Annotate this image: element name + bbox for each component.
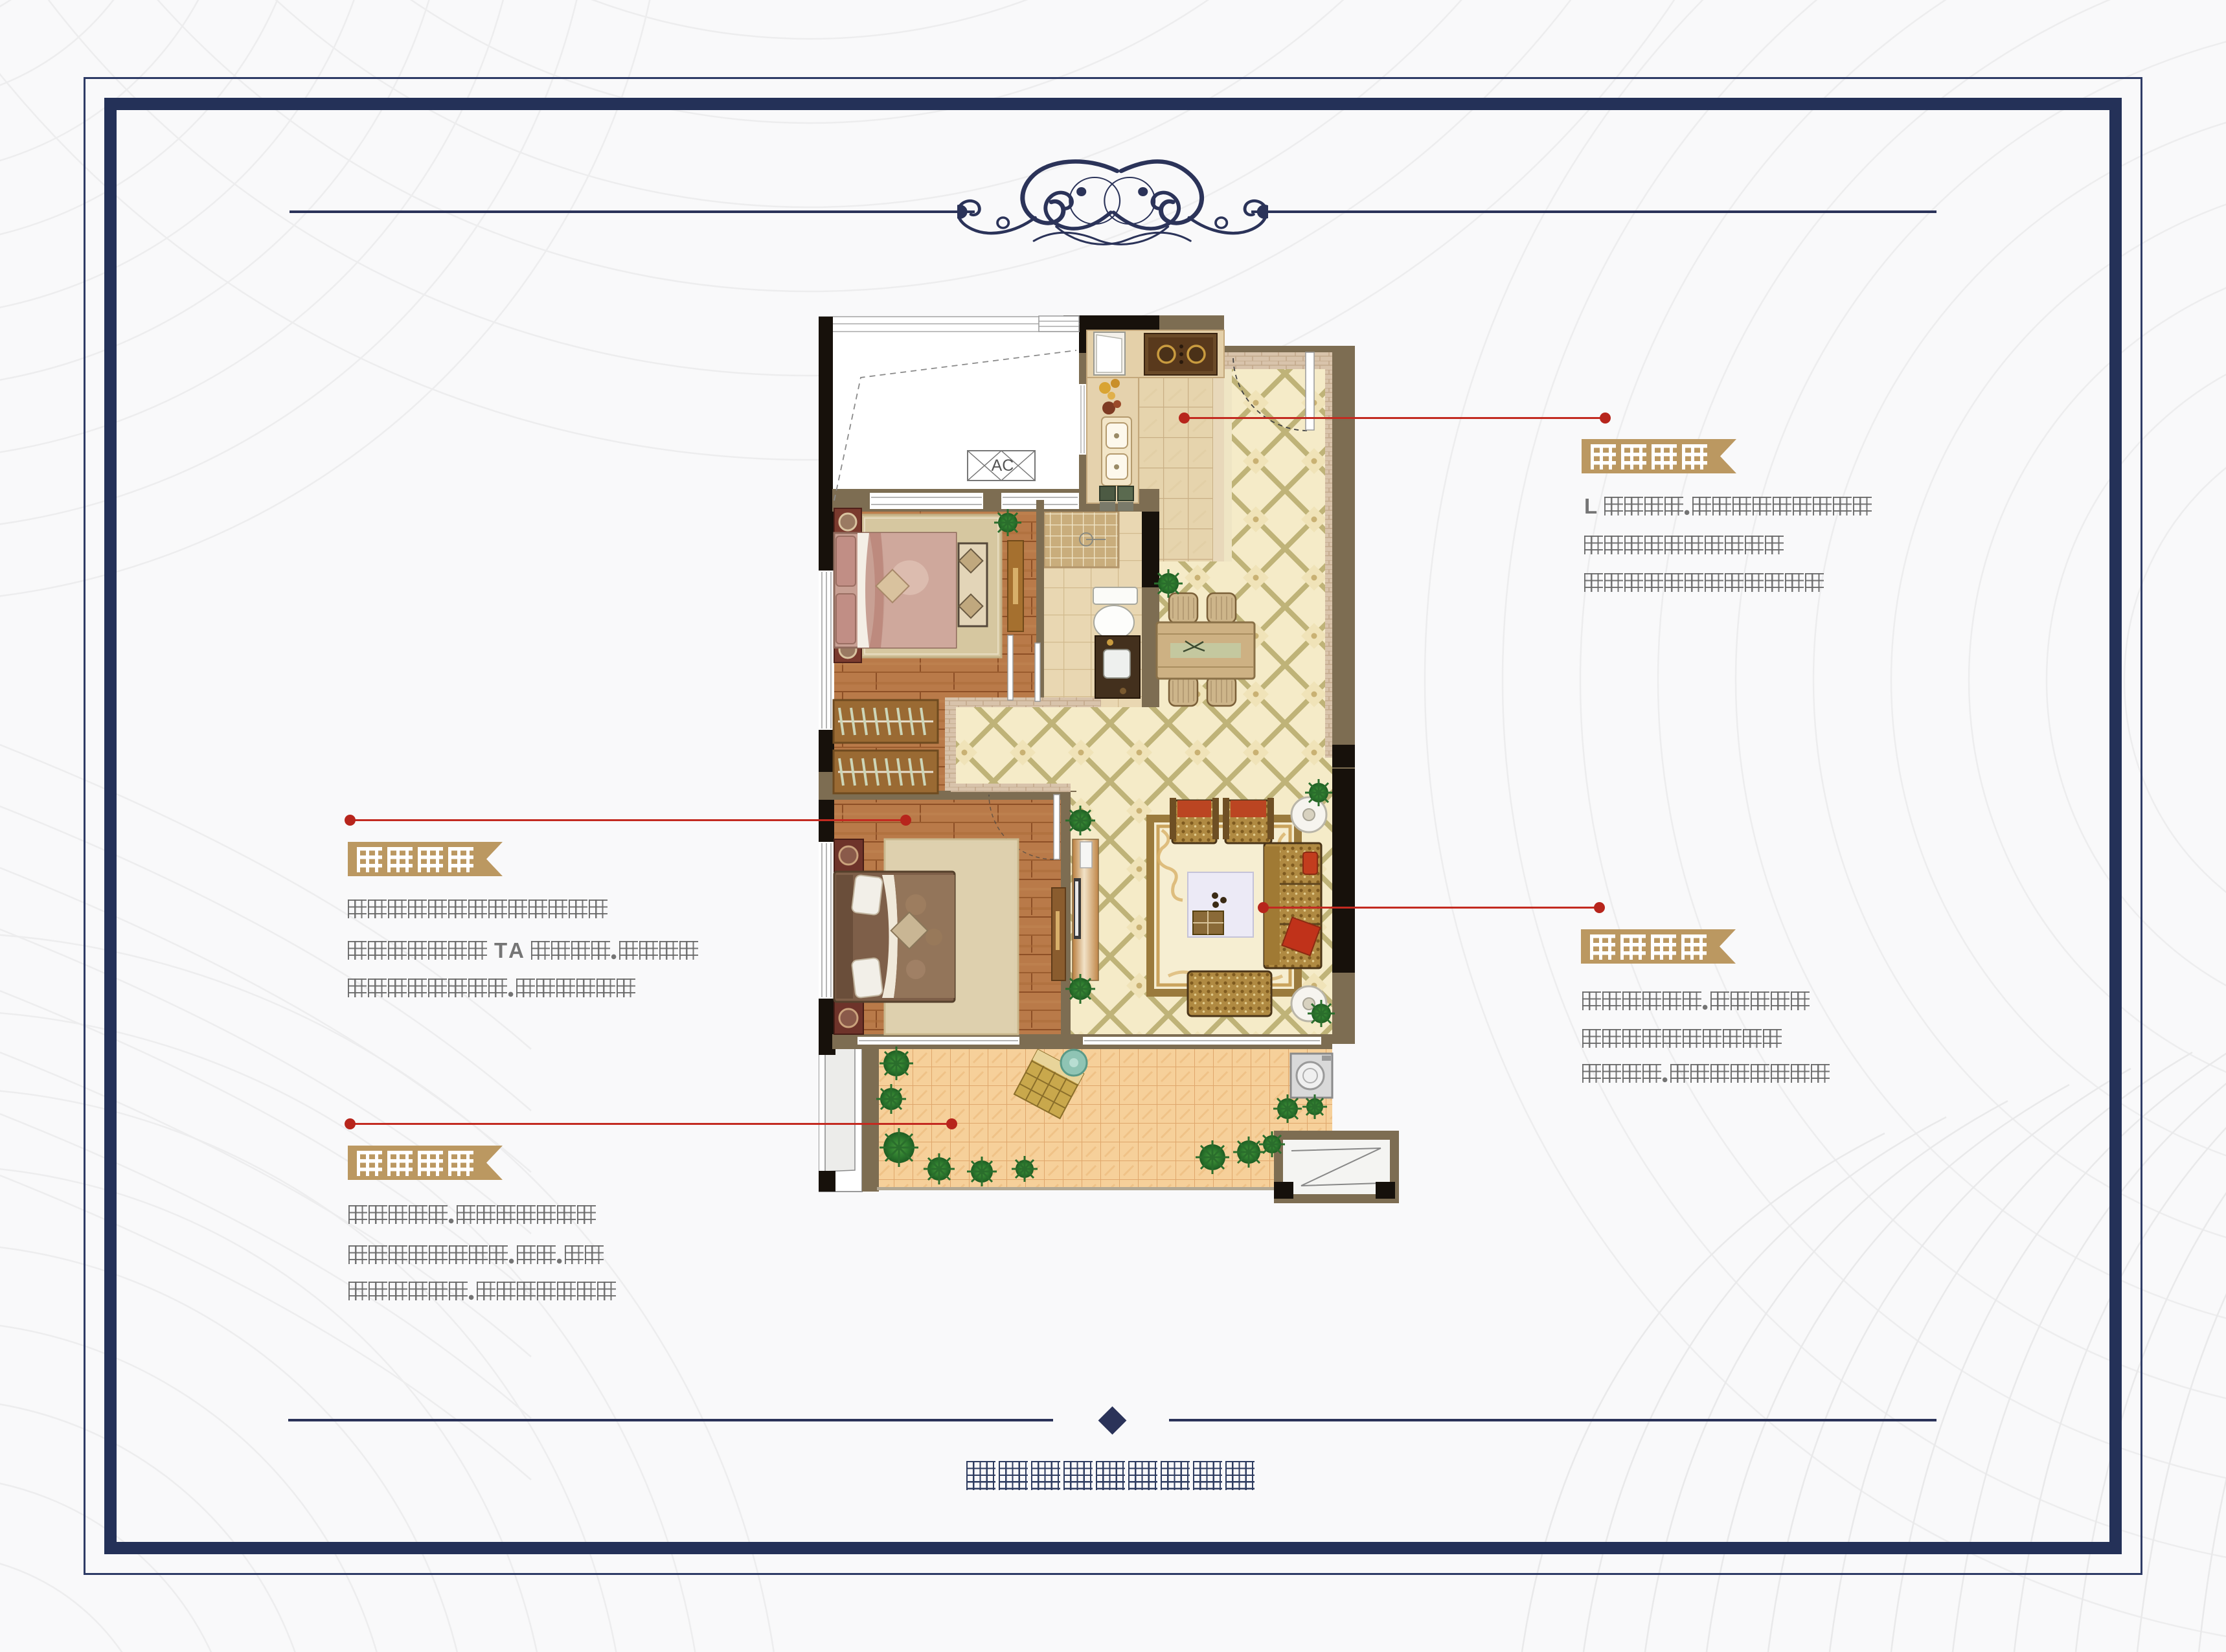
svg-text:AC: AC bbox=[992, 457, 1014, 475]
